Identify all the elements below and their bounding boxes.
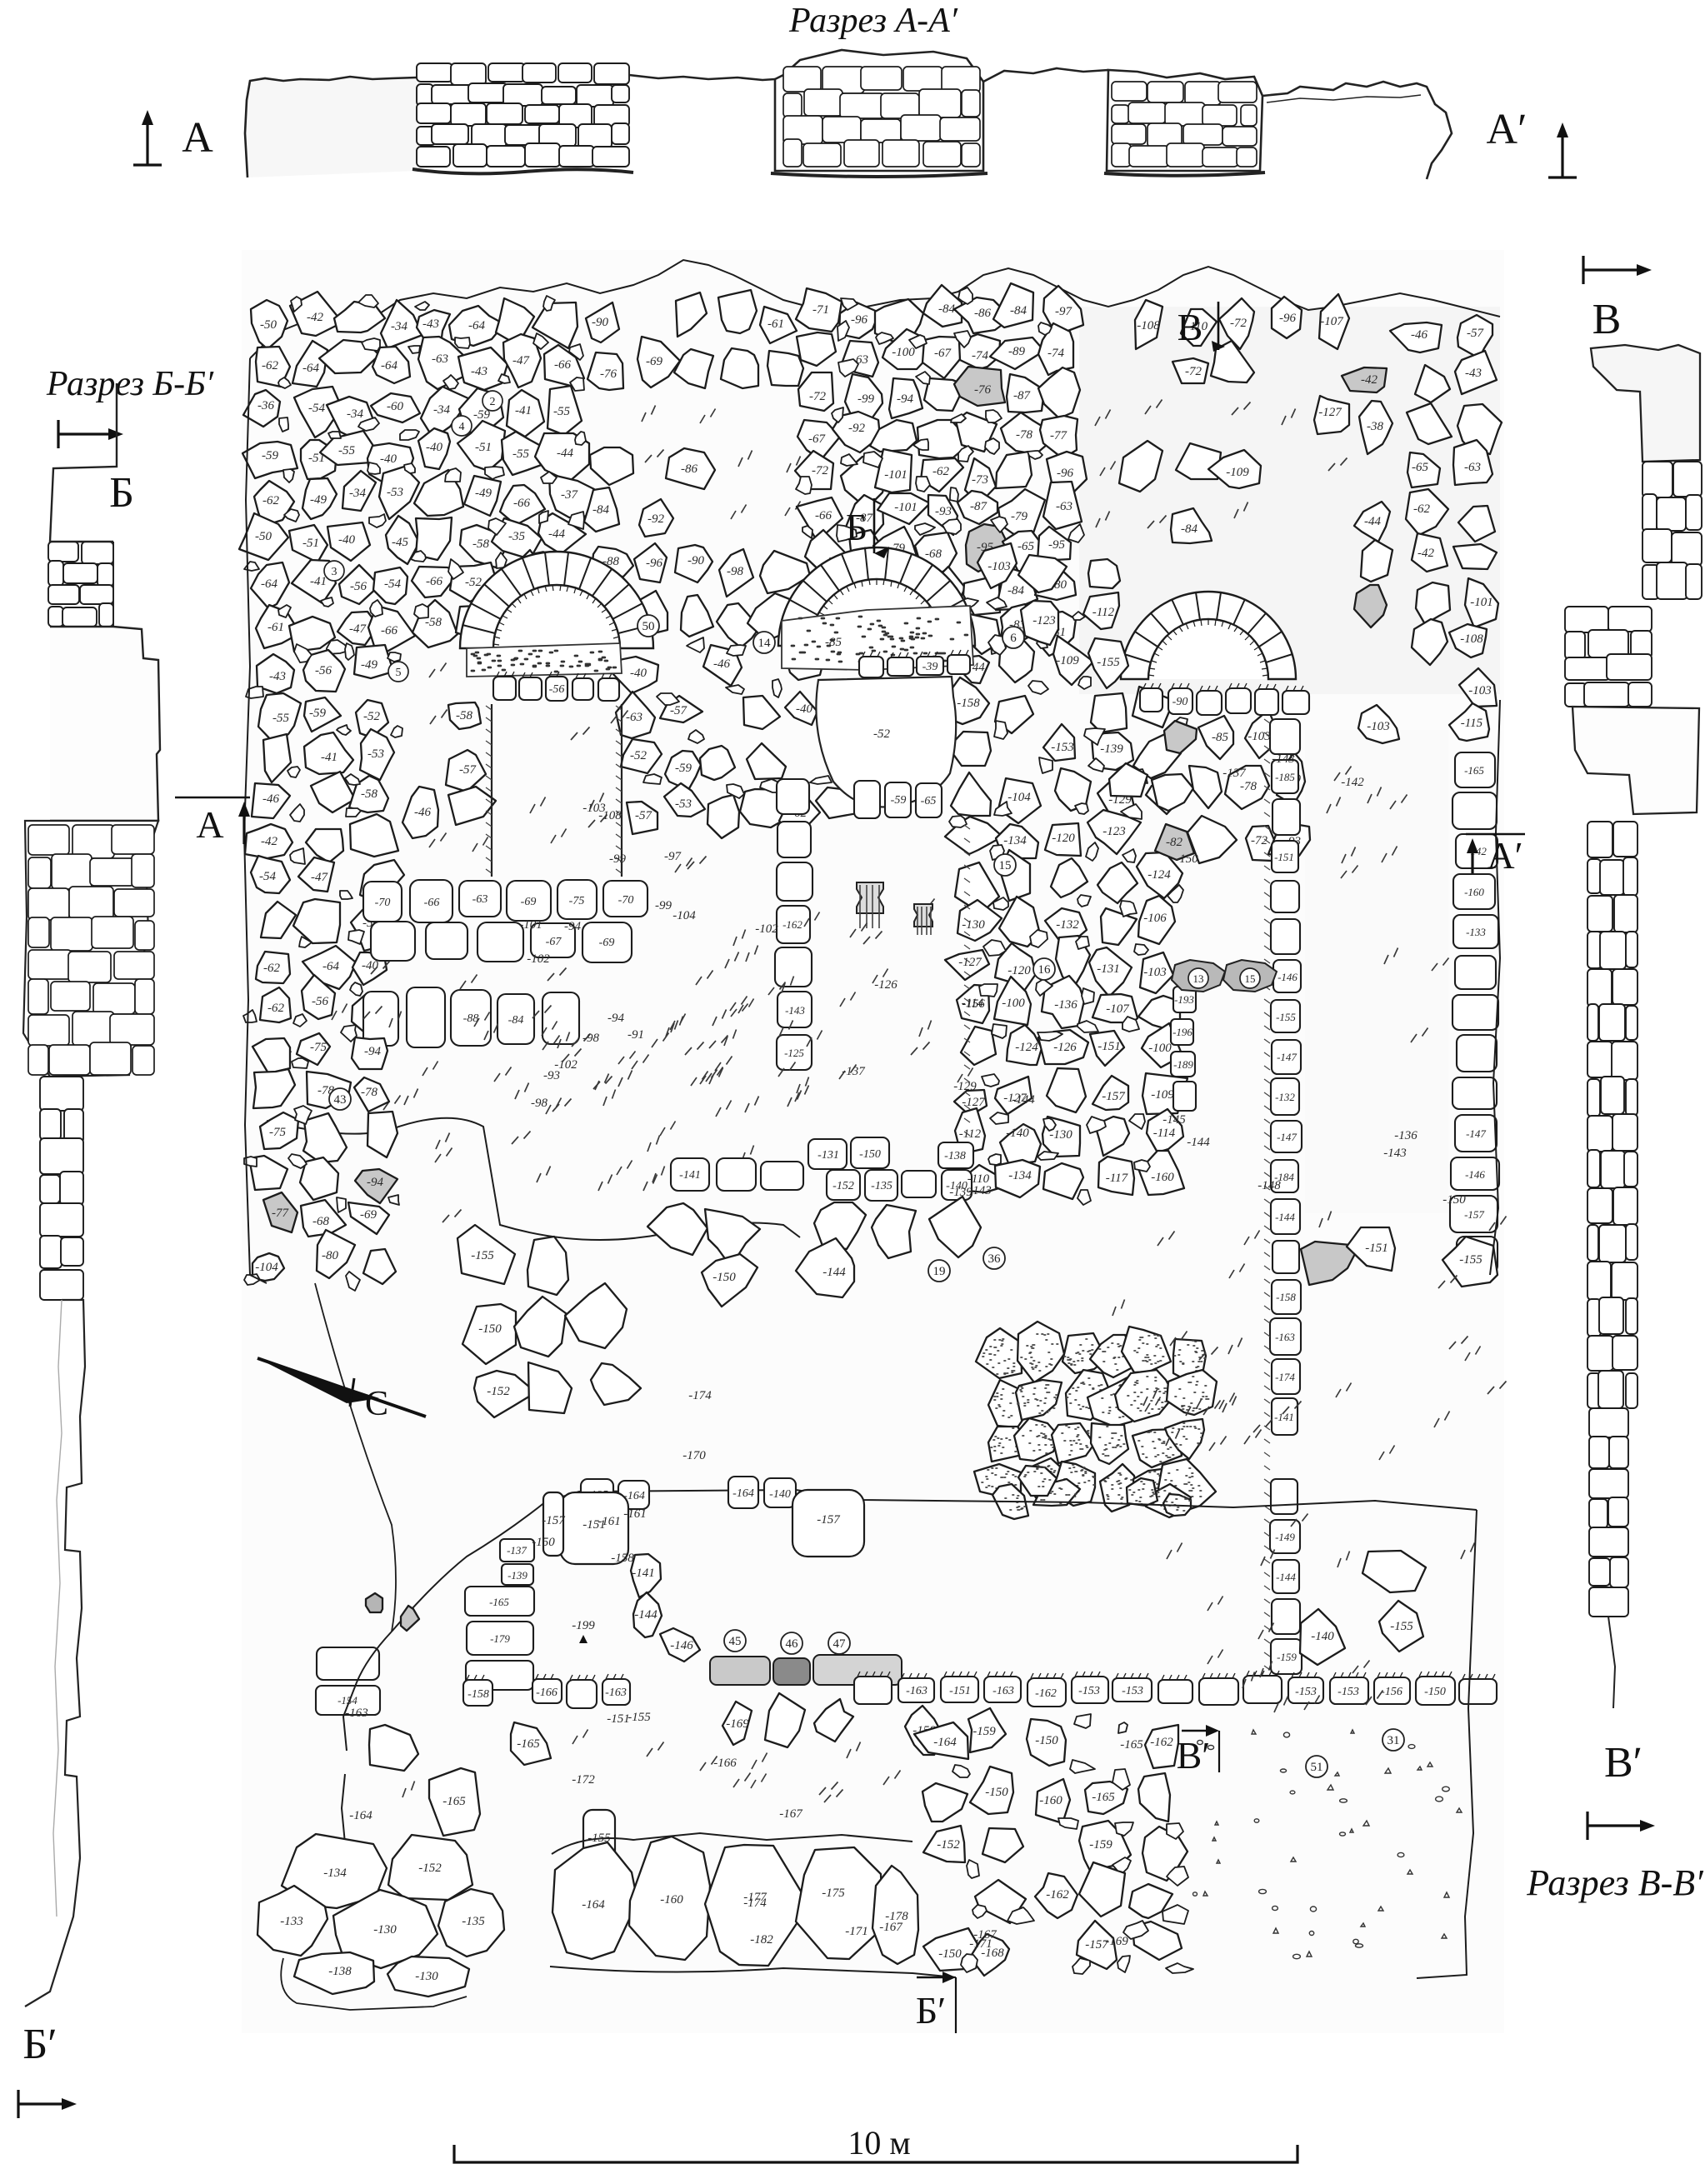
svg-text:-69: -69 <box>646 355 662 368</box>
svg-text:-99: -99 <box>609 852 626 866</box>
svg-text:А: А <box>182 114 213 162</box>
svg-text:-80: -80 <box>322 1249 338 1262</box>
svg-text:-103: -103 <box>987 560 1011 573</box>
svg-text:-151: -151 <box>607 1712 630 1726</box>
svg-text:-114: -114 <box>1153 1127 1176 1140</box>
svg-text:-72: -72 <box>1230 317 1247 330</box>
svg-text:-67: -67 <box>934 347 952 360</box>
svg-text:-64: -64 <box>468 319 485 332</box>
svg-text:-92: -92 <box>848 422 865 435</box>
svg-text:-150: -150 <box>1175 852 1198 866</box>
svg-text:-99: -99 <box>857 392 874 406</box>
svg-text:-79: -79 <box>1011 510 1027 523</box>
svg-text:-163: -163 <box>605 1687 627 1699</box>
svg-text:-50: -50 <box>255 530 272 543</box>
svg-text:-92: -92 <box>647 512 664 526</box>
svg-text:-90: -90 <box>1172 696 1188 708</box>
svg-text:-94: -94 <box>607 1012 624 1025</box>
svg-text:-103: -103 <box>1367 720 1390 733</box>
svg-text:-98: -98 <box>531 1097 547 1110</box>
svg-text:-95: -95 <box>1048 538 1065 552</box>
svg-text:-137: -137 <box>842 1065 866 1078</box>
svg-text:-152: -152 <box>937 1838 960 1852</box>
svg-text:-136: -136 <box>1394 1129 1417 1142</box>
svg-text:-120: -120 <box>1007 964 1031 977</box>
svg-text:-147: -147 <box>1466 1127 1486 1140</box>
svg-text:-157: -157 <box>1464 1208 1484 1221</box>
svg-text:-167: -167 <box>879 1921 903 1934</box>
svg-text:-64: -64 <box>322 960 339 973</box>
svg-text:-86: -86 <box>681 462 697 476</box>
svg-text:-153: -153 <box>1051 741 1074 754</box>
svg-text:-163: -163 <box>906 1685 927 1697</box>
svg-text:-44: -44 <box>1364 515 1381 528</box>
svg-text:-47: -47 <box>512 354 530 367</box>
svg-text:-165: -165 <box>517 1737 540 1751</box>
svg-text:-151: -151 <box>1097 1040 1121 1053</box>
svg-text:-144: -144 <box>1275 1211 1295 1223</box>
svg-text:-149: -149 <box>1275 1531 1295 1543</box>
svg-text:-164: -164 <box>933 1736 957 1749</box>
svg-text:-135: -135 <box>871 1180 892 1192</box>
svg-text:-59: -59 <box>675 762 692 775</box>
svg-text:-84: -84 <box>1007 584 1024 597</box>
svg-text:-175: -175 <box>822 1887 845 1900</box>
svg-text:-100: -100 <box>1002 997 1025 1010</box>
svg-text:-78: -78 <box>1240 780 1257 793</box>
svg-text:-109: -109 <box>1056 654 1079 667</box>
svg-text:-84: -84 <box>1181 522 1197 536</box>
svg-text:-157: -157 <box>817 1513 841 1527</box>
svg-text:-101: -101 <box>894 501 917 514</box>
svg-text:-75: -75 <box>310 1041 327 1054</box>
svg-text:-193: -193 <box>1174 993 1194 1006</box>
svg-text:-167: -167 <box>779 1807 803 1821</box>
svg-text:-153: -153 <box>1337 1686 1359 1698</box>
svg-text:-39: -39 <box>922 661 938 673</box>
svg-text:-53: -53 <box>367 747 384 761</box>
svg-text:-130: -130 <box>962 918 985 932</box>
svg-text:-177: -177 <box>743 1891 767 1904</box>
svg-text:-72: -72 <box>1251 834 1267 847</box>
svg-text:45: 45 <box>729 1635 742 1648</box>
svg-text:-155: -155 <box>1097 656 1120 669</box>
svg-text:-66: -66 <box>554 358 571 372</box>
svg-text:-106: -106 <box>1143 912 1167 925</box>
svg-text:-40: -40 <box>362 959 378 972</box>
svg-text:-132: -132 <box>1275 1091 1295 1103</box>
svg-text:-94: -94 <box>364 1045 381 1058</box>
svg-text:-101: -101 <box>884 468 907 482</box>
svg-text:-141: -141 <box>632 1567 655 1580</box>
svg-text:-126: -126 <box>1053 1041 1077 1054</box>
svg-text:-164: -164 <box>582 1898 605 1912</box>
svg-text:-135: -135 <box>462 1915 485 1928</box>
svg-text:-141: -141 <box>679 1169 701 1182</box>
svg-text:-109: -109 <box>1226 466 1249 479</box>
svg-text:-150: -150 <box>478 1322 502 1336</box>
svg-text:-75: -75 <box>569 895 585 907</box>
svg-text:-160: -160 <box>660 1893 683 1907</box>
svg-text:А′: А′ <box>1487 106 1527 153</box>
svg-text:-112: -112 <box>1092 606 1115 619</box>
svg-text:15: 15 <box>999 859 1012 872</box>
svg-text:-143: -143 <box>785 1004 805 1017</box>
svg-text:-62: -62 <box>263 962 280 975</box>
svg-text:-49: -49 <box>361 658 377 672</box>
svg-text:-199: -199 <box>572 1619 595 1632</box>
svg-text:-124: -124 <box>1015 1041 1038 1054</box>
svg-text:-158: -158 <box>957 697 980 710</box>
svg-text:-90: -90 <box>592 316 608 329</box>
svg-text:-87: -87 <box>970 500 987 513</box>
svg-text:-47: -47 <box>349 622 367 636</box>
svg-text:-52: -52 <box>363 710 380 723</box>
svg-text:-179: -179 <box>490 1632 510 1645</box>
svg-text:-42: -42 <box>1417 547 1434 560</box>
svg-text:-120: -120 <box>1052 832 1075 845</box>
svg-text:-43: -43 <box>471 365 487 378</box>
svg-text:-126: -126 <box>874 978 897 992</box>
svg-text:В: В <box>1177 306 1203 348</box>
svg-text:-70: -70 <box>375 897 391 909</box>
svg-text:-56: -56 <box>350 580 367 593</box>
svg-text:-162: -162 <box>782 918 802 931</box>
svg-text:-90: -90 <box>687 554 704 567</box>
svg-text:-127: -127 <box>962 1096 986 1109</box>
svg-text:-153: -153 <box>1295 1686 1317 1698</box>
svg-text:-66: -66 <box>815 509 832 522</box>
svg-text:В′: В′ <box>1177 1734 1211 1777</box>
svg-text:-55: -55 <box>512 447 529 461</box>
svg-text:-137: -137 <box>1222 767 1247 780</box>
svg-text:-62: -62 <box>267 1002 284 1015</box>
svg-text:-101: -101 <box>1470 596 1493 609</box>
svg-text:-145: -145 <box>1162 1113 1186 1127</box>
svg-text:-124: -124 <box>1147 868 1171 882</box>
svg-text:-133: -133 <box>280 1915 303 1928</box>
svg-text:-69: -69 <box>599 937 615 949</box>
svg-text:-55: -55 <box>338 444 355 457</box>
svg-text:-94: -94 <box>897 392 913 406</box>
svg-text:-85: -85 <box>1212 731 1228 744</box>
svg-text:Разрез А-А′: Разрез А-А′ <box>788 2 958 40</box>
svg-text:-163: -163 <box>992 1685 1014 1697</box>
svg-text:-40: -40 <box>796 702 812 716</box>
svg-text:-54: -54 <box>384 577 401 591</box>
svg-text:-115: -115 <box>1461 717 1483 730</box>
svg-text:-165: -165 <box>442 1795 466 1808</box>
svg-text:-134: -134 <box>323 1867 347 1880</box>
svg-text:-130: -130 <box>1049 1128 1072 1142</box>
svg-text:-96: -96 <box>1279 312 1296 325</box>
svg-text:-63: -63 <box>432 352 448 366</box>
svg-text:-51: -51 <box>475 441 492 454</box>
svg-text:-34: -34 <box>433 403 450 417</box>
svg-text:-66: -66 <box>513 497 530 510</box>
svg-text:-171: -171 <box>845 1925 868 1938</box>
svg-text:2: 2 <box>490 396 496 408</box>
svg-text:6: 6 <box>1010 632 1017 645</box>
svg-text:19: 19 <box>933 1265 946 1278</box>
svg-text:-152: -152 <box>418 1862 442 1875</box>
svg-text:-155: -155 <box>627 1711 651 1724</box>
svg-text:-84: -84 <box>592 503 609 517</box>
svg-text:-155: -155 <box>1459 1253 1482 1267</box>
svg-text:-144: -144 <box>1187 1136 1210 1149</box>
svg-text:-123: -123 <box>1032 614 1056 627</box>
svg-text:-157: -157 <box>1102 1090 1126 1103</box>
svg-text:-66: -66 <box>381 624 397 637</box>
svg-text:-143: -143 <box>1383 1147 1407 1160</box>
svg-text:-109: -109 <box>1151 1088 1174 1102</box>
svg-text:-63: -63 <box>626 711 642 724</box>
svg-text:С: С <box>365 1385 388 1423</box>
svg-text:-40: -40 <box>426 441 442 454</box>
svg-text:-54: -54 <box>308 402 325 415</box>
svg-text:Б′: Б′ <box>916 1989 946 2032</box>
svg-text:-43: -43 <box>422 317 439 331</box>
svg-text:-82: -82 <box>1166 836 1182 849</box>
svg-text:-144: -144 <box>1012 1093 1035 1107</box>
svg-text:-64: -64 <box>261 577 277 591</box>
svg-text:-40: -40 <box>380 452 397 466</box>
svg-text:-112: -112 <box>959 1127 982 1141</box>
svg-text:-61: -61 <box>267 621 284 634</box>
svg-text:-147: -147 <box>1277 1051 1297 1063</box>
svg-text:-67: -67 <box>808 432 826 446</box>
svg-text:-57: -57 <box>635 809 652 822</box>
svg-text:-38: -38 <box>1367 420 1383 433</box>
svg-text:-143: -143 <box>968 1184 992 1197</box>
svg-text:-93: -93 <box>935 505 952 518</box>
svg-text:-152: -152 <box>832 1180 854 1192</box>
svg-text:-110: -110 <box>967 1172 990 1186</box>
svg-text:-134: -134 <box>1003 834 1027 847</box>
svg-text:-132: -132 <box>1056 918 1079 932</box>
svg-text:-142: -142 <box>1341 776 1364 789</box>
svg-text:-56: -56 <box>315 664 332 677</box>
svg-text:-163: -163 <box>1275 1331 1295 1343</box>
svg-text:13: 13 <box>1193 972 1204 985</box>
svg-text:-158: -158 <box>1276 1291 1296 1303</box>
svg-text:-43: -43 <box>1465 367 1482 380</box>
svg-text:-103: -103 <box>1468 684 1492 697</box>
svg-text:14: 14 <box>758 637 772 650</box>
svg-text:-98: -98 <box>582 1032 599 1045</box>
svg-text:-42: -42 <box>1361 373 1377 387</box>
svg-text:-49: -49 <box>310 493 327 507</box>
svg-text:-150: -150 <box>938 1947 962 1961</box>
svg-text:-130: -130 <box>373 1923 397 1937</box>
svg-text:-84: -84 <box>1010 304 1027 317</box>
svg-text:-161: -161 <box>623 1507 647 1521</box>
svg-text:А: А <box>196 803 223 846</box>
svg-text:-158: -158 <box>467 1688 489 1701</box>
svg-text:-103: -103 <box>582 802 606 815</box>
svg-text:-37: -37 <box>561 488 578 502</box>
svg-text:-152: -152 <box>487 1385 510 1398</box>
svg-text:-164: -164 <box>349 1809 372 1822</box>
svg-text:-196: -196 <box>1172 1026 1192 1038</box>
svg-text:-131: -131 <box>817 1149 839 1162</box>
svg-text:-140: -140 <box>769 1488 791 1501</box>
svg-text:15: 15 <box>1245 972 1256 985</box>
svg-text:-102: -102 <box>755 922 778 936</box>
svg-text:-71: -71 <box>812 303 829 317</box>
svg-text:-77: -77 <box>1050 429 1067 442</box>
svg-text:-46: -46 <box>1411 328 1427 342</box>
svg-text:-144: -144 <box>822 1266 846 1279</box>
svg-text:-155: -155 <box>1276 1011 1296 1023</box>
svg-text:-134: -134 <box>1008 1169 1032 1182</box>
svg-text:-69: -69 <box>360 1208 377 1222</box>
svg-text:-59: -59 <box>309 707 326 720</box>
svg-text:-157: -157 <box>542 1514 566 1527</box>
svg-text:-40: -40 <box>630 667 647 680</box>
svg-text:3: 3 <box>332 566 337 578</box>
svg-text:-103: -103 <box>1143 966 1167 979</box>
svg-text:-174: -174 <box>688 1389 712 1402</box>
svg-text:-93: -93 <box>543 1069 560 1082</box>
svg-text:-89: -89 <box>1008 345 1025 358</box>
svg-text:16: 16 <box>1038 963 1052 977</box>
svg-text:-164: -164 <box>732 1487 754 1500</box>
svg-text:-63: -63 <box>1464 461 1481 474</box>
svg-text:-151: -151 <box>1274 851 1294 863</box>
svg-text:-123: -123 <box>1102 825 1126 838</box>
svg-text:-185: -185 <box>1275 771 1295 783</box>
svg-text:-150: -150 <box>985 1786 1008 1799</box>
svg-text:-182: -182 <box>750 1933 773 1947</box>
svg-text:-150: -150 <box>859 1148 881 1161</box>
svg-text:-68: -68 <box>925 547 942 561</box>
svg-text:-51: -51 <box>302 537 319 550</box>
svg-text:-63: -63 <box>472 893 488 906</box>
svg-text:А′: А′ <box>1487 834 1522 877</box>
svg-text:-69: -69 <box>521 896 537 908</box>
svg-text:-104: -104 <box>672 909 696 922</box>
svg-text:31: 31 <box>1387 1734 1400 1747</box>
svg-text:-103: -103 <box>1247 730 1271 743</box>
svg-text:4: 4 <box>459 421 465 433</box>
svg-text:-117: -117 <box>1106 1172 1129 1185</box>
svg-text:-85: -85 <box>825 636 842 649</box>
svg-text:-150: -150 <box>532 1536 555 1549</box>
svg-text:-47: -47 <box>311 871 328 884</box>
svg-text:-139: -139 <box>507 1569 527 1582</box>
svg-text:-153: -153 <box>1122 1685 1143 1697</box>
svg-text:-131: -131 <box>1097 962 1120 976</box>
svg-text:-46: -46 <box>262 792 279 806</box>
svg-text:-56: -56 <box>549 683 565 696</box>
svg-text:-137: -137 <box>507 1544 527 1557</box>
svg-text:-58: -58 <box>361 787 377 801</box>
svg-text:-84: -84 <box>508 1014 524 1027</box>
svg-text:-144: -144 <box>634 1608 657 1622</box>
svg-text:51: 51 <box>1311 1761 1323 1774</box>
svg-text:-136: -136 <box>1054 998 1077 1012</box>
svg-text:-42: -42 <box>307 311 323 324</box>
svg-text:-41: -41 <box>321 751 337 764</box>
svg-text:-70: -70 <box>618 894 634 907</box>
svg-text:-161: -161 <box>597 1515 621 1528</box>
svg-text:-160: -160 <box>1151 1171 1174 1184</box>
svg-text:-91: -91 <box>627 1028 644 1042</box>
svg-text:-57: -57 <box>1467 327 1484 340</box>
svg-text:-169: -169 <box>726 1717 749 1731</box>
svg-text:-73: -73 <box>972 473 988 487</box>
svg-text:-162: -162 <box>1035 1687 1057 1700</box>
svg-text:-78: -78 <box>361 1086 377 1099</box>
svg-text:43: 43 <box>334 1093 347 1107</box>
svg-text:-114: -114 <box>962 997 984 1010</box>
svg-text:-108: -108 <box>1460 632 1483 646</box>
svg-text:-58: -58 <box>456 709 472 722</box>
svg-text:-94: -94 <box>367 1176 383 1189</box>
svg-text:-160: -160 <box>1039 1794 1062 1807</box>
svg-text:-67: -67 <box>546 936 562 948</box>
svg-text:-57: -57 <box>459 763 477 777</box>
svg-text:-64: -64 <box>302 362 319 375</box>
svg-text:-43: -43 <box>269 670 286 683</box>
svg-text:-62: -62 <box>932 465 949 478</box>
svg-text:-165: -165 <box>1120 1738 1143 1752</box>
svg-text:-125: -125 <box>784 1047 804 1059</box>
svg-text:-64: -64 <box>381 359 397 372</box>
svg-text:-76: -76 <box>600 367 617 381</box>
svg-text:-56: -56 <box>312 995 328 1008</box>
svg-text:-96: -96 <box>1057 467 1073 480</box>
svg-text:-96: -96 <box>851 313 867 327</box>
svg-text:-163: -163 <box>345 1707 368 1720</box>
svg-text:10 м: 10 м <box>847 2124 910 2162</box>
svg-text:-100: -100 <box>892 346 915 359</box>
svg-text:-100: -100 <box>1148 1042 1172 1055</box>
svg-text:-159: -159 <box>1277 1651 1297 1663</box>
svg-text:-52: -52 <box>630 749 647 762</box>
svg-text:-127: -127 <box>1318 406 1342 419</box>
svg-text:-140: -140 <box>1006 1127 1029 1140</box>
svg-text:-151: -151 <box>949 1685 971 1697</box>
svg-text:Б: Б <box>109 469 134 517</box>
svg-text:-65: -65 <box>1412 461 1428 474</box>
svg-text:-144: -144 <box>1276 1571 1296 1583</box>
svg-text:-158: -158 <box>611 1552 634 1565</box>
svg-text:-65: -65 <box>921 795 937 807</box>
svg-text:-162: -162 <box>1046 1888 1069 1902</box>
svg-text:50: 50 <box>642 620 655 633</box>
svg-text:-130: -130 <box>415 1970 438 1983</box>
svg-text:-62: -62 <box>262 359 278 372</box>
svg-text:-41: -41 <box>310 575 327 588</box>
svg-text:-189: -189 <box>1173 1058 1193 1071</box>
svg-text:-57: -57 <box>670 704 687 717</box>
svg-text:-66: -66 <box>426 575 442 588</box>
svg-text:-44: -44 <box>557 447 573 460</box>
svg-text:-50: -50 <box>260 318 277 332</box>
svg-text:-68: -68 <box>312 1215 329 1228</box>
svg-text:-146: -146 <box>1465 1168 1485 1181</box>
svg-text:-165: -165 <box>1092 1791 1115 1804</box>
svg-text:-155: -155 <box>471 1249 494 1262</box>
svg-text:-146: -146 <box>1277 971 1297 983</box>
svg-text:-172: -172 <box>572 1773 595 1787</box>
svg-text:В: В <box>1592 296 1622 343</box>
svg-text:-59: -59 <box>891 794 907 807</box>
svg-text:-159: -159 <box>972 1725 996 1738</box>
svg-text:-146: -146 <box>670 1639 693 1652</box>
